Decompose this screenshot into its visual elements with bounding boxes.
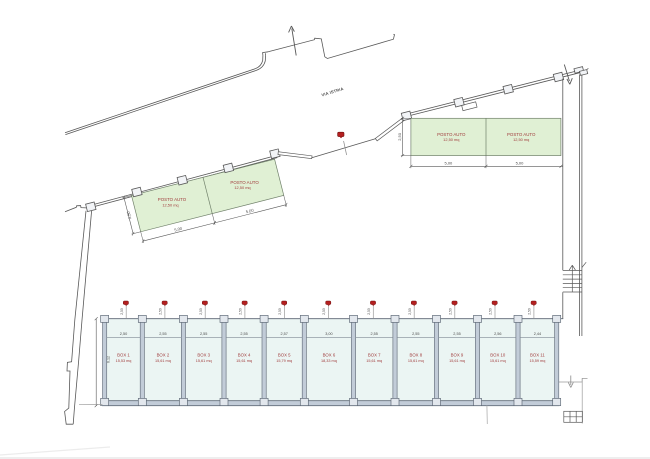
svg-text:2,55: 2,55 <box>412 332 419 336</box>
svg-text:2,55: 2,55 <box>453 332 460 336</box>
svg-text:2,50: 2,50 <box>367 308 371 315</box>
svg-text:5,00: 5,00 <box>445 161 454 166</box>
svg-text:18,33 mq: 18,33 mq <box>321 359 337 363</box>
svg-text:2,56: 2,56 <box>494 332 501 336</box>
svg-text:2,50: 2,50 <box>159 308 163 315</box>
svg-text:POSTO AUTO: POSTO AUTO <box>437 132 466 137</box>
svg-text:BOX 9: BOX 9 <box>451 353 464 358</box>
svg-text:15,61 mq: 15,61 mq <box>408 359 424 363</box>
svg-text:BOX 7: BOX 7 <box>368 353 381 358</box>
svg-text:2,44: 2,44 <box>534 332 541 336</box>
svg-text:BOX 4: BOX 4 <box>238 353 251 358</box>
svg-text:12,50 mq: 12,50 mq <box>513 137 529 142</box>
svg-text:2,50: 2,50 <box>397 132 402 141</box>
svg-text:6,12: 6,12 <box>107 356 111 363</box>
svg-text:2,50: 2,50 <box>120 332 127 336</box>
svg-text:2,50: 2,50 <box>120 308 124 315</box>
svg-text:BOX 8: BOX 8 <box>409 353 422 358</box>
svg-text:POSTO AUTO: POSTO AUTO <box>507 132 536 137</box>
svg-text:2,50: 2,50 <box>408 308 412 315</box>
svg-text:15,61 mq: 15,61 mq <box>196 359 212 363</box>
svg-text:2,50: 2,50 <box>322 308 326 315</box>
svg-text:POSTO AUTO: POSTO AUTO <box>230 180 259 185</box>
svg-text:12,50 mq: 12,50 mq <box>162 203 178 208</box>
svg-text:15,61 mq: 15,61 mq <box>155 359 171 363</box>
svg-text:BOX 5: BOX 5 <box>278 353 291 358</box>
svg-text:2,50: 2,50 <box>448 308 452 315</box>
svg-text:15,61 mq: 15,61 mq <box>236 359 252 363</box>
svg-text:2,50: 2,50 <box>199 308 203 315</box>
svg-text:15,61 mq: 15,61 mq <box>490 359 506 363</box>
svg-text:15,61 mq: 15,61 mq <box>449 359 465 363</box>
svg-text:2,55: 2,55 <box>200 332 207 336</box>
svg-text:POSTO AUTO: POSTO AUTO <box>158 197 187 202</box>
svg-text:BOX 3: BOX 3 <box>197 353 210 358</box>
svg-text:3,00: 3,00 <box>325 332 332 336</box>
svg-text:12,50 mq: 12,50 mq <box>234 185 250 190</box>
svg-text:15,61 mq: 15,61 mq <box>366 359 382 363</box>
svg-text:15,59 mq: 15,59 mq <box>529 359 545 363</box>
svg-text:12,50 mq: 12,50 mq <box>443 137 459 142</box>
svg-text:2,50: 2,50 <box>489 308 493 315</box>
svg-text:BOX 10: BOX 10 <box>490 353 506 358</box>
svg-text:BOX 11: BOX 11 <box>530 353 545 358</box>
svg-text:2,55: 2,55 <box>371 332 378 336</box>
svg-text:BOX 6: BOX 6 <box>323 353 336 358</box>
svg-text:2,55: 2,55 <box>159 332 166 336</box>
svg-text:2,50: 2,50 <box>239 308 243 315</box>
svg-text:15,79 mq: 15,79 mq <box>276 359 292 363</box>
svg-text:2,50: 2,50 <box>528 308 532 315</box>
svg-text:BOX 1: BOX 1 <box>117 353 130 358</box>
svg-text:15,53 mq: 15,53 mq <box>116 359 132 363</box>
svg-text:2,55: 2,55 <box>240 332 247 336</box>
svg-text:BOX 2: BOX 2 <box>157 353 170 358</box>
svg-text:5,00: 5,00 <box>516 161 525 166</box>
svg-text:2,57: 2,57 <box>281 332 288 336</box>
svg-text:2,50: 2,50 <box>278 308 282 315</box>
